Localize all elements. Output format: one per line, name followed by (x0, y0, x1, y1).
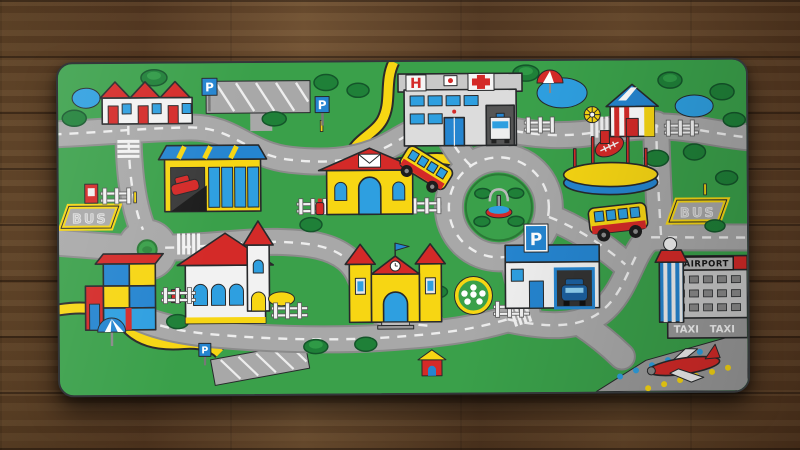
hospital: H (398, 73, 522, 146)
svg-text:P: P (205, 80, 214, 94)
svg-text:P: P (318, 98, 327, 112)
svg-text:P: P (530, 230, 543, 250)
bus-bay-right: BUS (669, 200, 727, 222)
red-cross-sign (468, 73, 494, 90)
bus-bay-left: BUS (61, 206, 119, 228)
car-dealership (158, 145, 266, 212)
fountain-roundabout-island (466, 174, 532, 240)
photo-scene: BUS BUS (0, 0, 800, 450)
row-houses (100, 81, 192, 124)
castle-school (345, 243, 446, 330)
taxi-text-1: TAXI (674, 324, 699, 335)
pinwheel (584, 107, 600, 123)
mat-artwork: BUS BUS (58, 60, 748, 396)
ambulance (486, 105, 514, 145)
red-cross-flag (444, 76, 457, 86)
taxi-text-2: TAXI (710, 324, 735, 335)
fence (161, 287, 195, 303)
hospital-h-sign: H (406, 75, 426, 92)
svg-text:P: P (201, 345, 208, 356)
parking-garage-sign: P (524, 224, 548, 252)
bus-text-left: BUS (72, 212, 108, 227)
play-mat: BUS BUS (56, 58, 750, 398)
postbox-right (600, 131, 609, 144)
envelope-icon (358, 154, 380, 167)
bus-text-right: BUS (680, 206, 716, 221)
airport-sign: AIRPORT (679, 257, 733, 270)
svg-text:AIRPORT: AIRPORT (684, 259, 729, 269)
svg-text:H: H (410, 76, 422, 92)
